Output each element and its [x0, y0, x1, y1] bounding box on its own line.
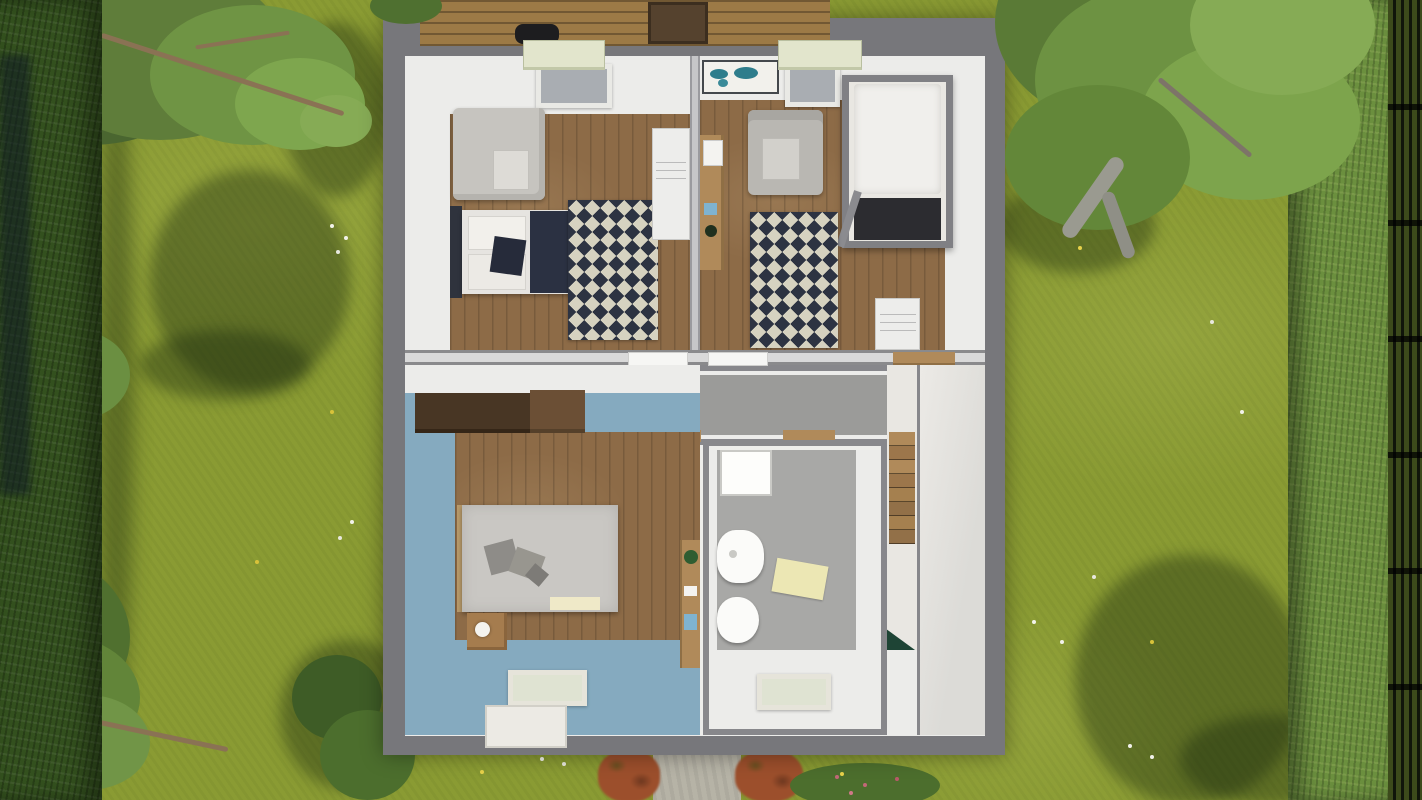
- desk-item-blue: [704, 203, 717, 215]
- nightstand: [467, 613, 507, 650]
- shower: [720, 450, 772, 496]
- bedroom-top-left: [405, 56, 690, 350]
- zigzag-rug: [568, 200, 658, 340]
- skylight: [785, 65, 840, 107]
- hedge-dark-gap: [0, 55, 30, 495]
- vanity-desk: [680, 540, 700, 668]
- armchair-cushion: [762, 138, 800, 180]
- plant-pot: [705, 225, 717, 237]
- dresser: [875, 298, 920, 350]
- stair-step: [889, 516, 915, 530]
- map-continent: [710, 69, 728, 79]
- skylight: [757, 674, 831, 710]
- armchair: [748, 110, 823, 195]
- loft-bed: [842, 75, 953, 248]
- potted-plant: [684, 550, 698, 564]
- walkway: [653, 752, 741, 800]
- upper-floor-interior: [405, 56, 985, 736]
- flower-bush: [790, 763, 940, 800]
- desk-item-blue: [684, 614, 697, 630]
- bed-headboard: [450, 206, 462, 298]
- loft-bed-mattress: [854, 84, 941, 194]
- roof-dormer: [778, 40, 862, 70]
- tree-canopy: [1005, 85, 1190, 230]
- under-bed-space: [854, 198, 941, 240]
- master-bedroom: [405, 365, 700, 735]
- roof-dormer: [523, 40, 605, 70]
- sofa-cushion: [493, 150, 529, 190]
- interior-wall: [690, 56, 700, 350]
- wood-shelf: [530, 390, 585, 433]
- bathroom: [703, 440, 887, 735]
- red-bush-left: [598, 750, 660, 800]
- stair-step: [889, 446, 915, 460]
- zigzag-rug: [750, 212, 838, 348]
- toilet: [717, 597, 759, 643]
- skylight: [508, 670, 587, 706]
- world-map-poster: [702, 60, 779, 94]
- drain: [729, 550, 737, 558]
- wall-desk: [700, 135, 724, 270]
- garden-aerial-render: [0, 0, 1422, 800]
- washbasin: [717, 530, 764, 583]
- map-continent: [734, 67, 758, 79]
- wall-band: [405, 365, 700, 393]
- fence: [1388, 0, 1422, 800]
- stair-step: [889, 460, 915, 474]
- stair-step: [889, 530, 915, 544]
- sofa: [453, 108, 545, 200]
- dresser: [652, 128, 690, 240]
- house: [383, 18, 1005, 755]
- pink-flowers: [835, 775, 839, 779]
- wardrobe: [415, 393, 530, 433]
- skylight: [536, 64, 612, 108]
- map-continent: [718, 79, 728, 87]
- landing: [917, 365, 985, 735]
- stair-step: [889, 474, 915, 488]
- stairwell: [887, 365, 917, 650]
- staircase: [889, 432, 915, 545]
- laptop: [703, 140, 723, 166]
- foot-throw: [550, 597, 600, 610]
- planter-box: [648, 2, 708, 44]
- cushion-navy: [490, 236, 527, 276]
- white-flowers: [330, 224, 334, 228]
- door-top-right: [708, 352, 768, 366]
- stair-step: [889, 502, 915, 516]
- stair-head-rail: [893, 352, 955, 365]
- door-top-left: [628, 352, 688, 366]
- roof-dormer-bottom: [485, 705, 567, 748]
- lamp: [475, 622, 490, 637]
- double-bed: [462, 505, 618, 612]
- kids-room-top-right: [700, 56, 985, 350]
- tree-shadow: [140, 330, 310, 400]
- corner-plant: [887, 616, 915, 650]
- paper: [684, 586, 697, 596]
- stair-step: [889, 432, 915, 446]
- stair-step: [889, 488, 915, 502]
- wood-deck: [420, 0, 830, 46]
